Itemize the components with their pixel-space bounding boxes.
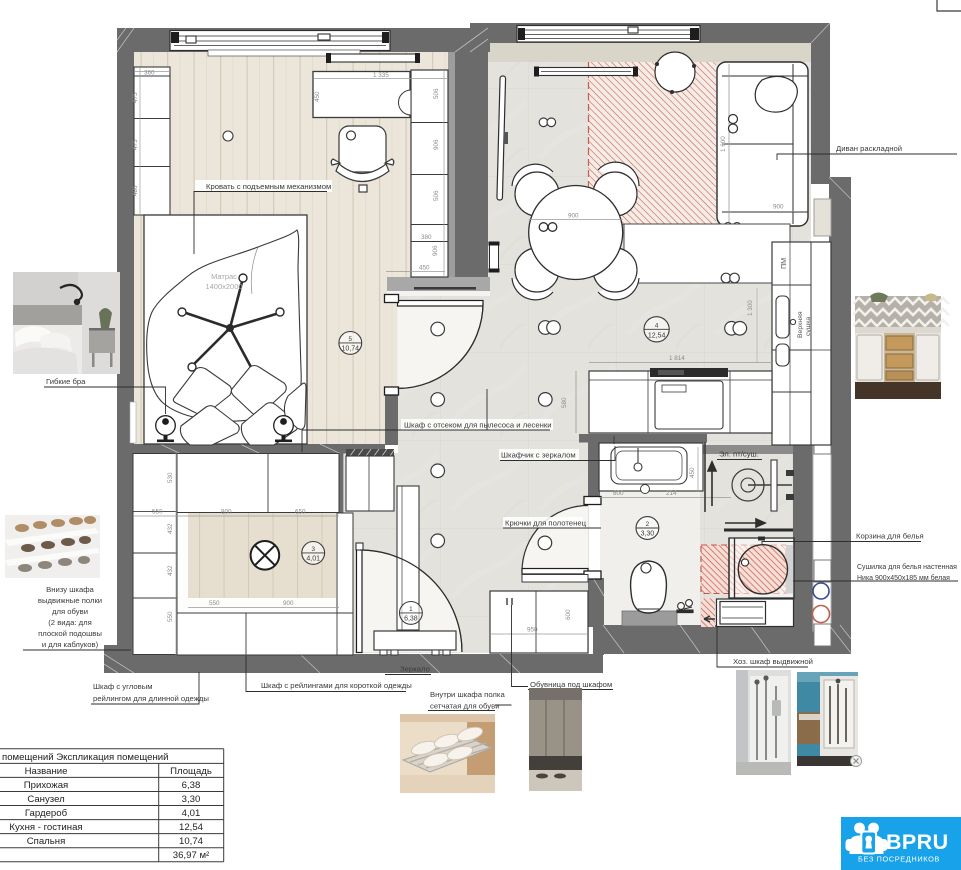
svg-text:475: 475 xyxy=(132,139,139,150)
svg-text:3,30: 3,30 xyxy=(182,794,201,805)
svg-text:Шкаф с отсеком для пылесоса и: Шкаф с отсеком для пылесоса и лесенки xyxy=(404,421,552,430)
svg-text:36,97 м²: 36,97 м² xyxy=(173,850,210,861)
svg-text:3: 3 xyxy=(311,546,315,553)
svg-text:12,54: 12,54 xyxy=(179,822,204,833)
svg-text:10,74: 10,74 xyxy=(179,836,204,847)
svg-text:Корзина для белья: Корзина для белья xyxy=(856,532,924,541)
svg-text:1: 1 xyxy=(409,606,413,613)
svg-text:4,01: 4,01 xyxy=(306,555,320,562)
svg-text:сетчатая для обуви: сетчатая для обуви xyxy=(430,702,500,711)
svg-text:Название: Название xyxy=(25,766,68,777)
svg-text:1400х2000: 1400х2000 xyxy=(205,282,242,291)
svg-text:450: 450 xyxy=(689,467,696,478)
svg-text:Внизу шкафа: Внизу шкафа xyxy=(46,585,94,594)
svg-text:Спальня: Спальня xyxy=(27,836,66,847)
svg-text:900: 900 xyxy=(568,213,579,220)
svg-text:906: 906 xyxy=(432,245,439,256)
svg-text:(2 вида: для: (2 вида: для xyxy=(48,618,92,627)
svg-text:900: 900 xyxy=(283,600,294,607)
svg-text:550: 550 xyxy=(209,600,220,607)
svg-text:600: 600 xyxy=(565,609,572,620)
svg-text:сушка: сушка xyxy=(805,317,812,336)
svg-text:помещений Экспликация помещени: помещений Экспликация помещений xyxy=(2,752,168,763)
svg-text:Площадь: Площадь xyxy=(170,766,212,777)
svg-text:2: 2 xyxy=(646,521,650,528)
svg-text:380: 380 xyxy=(421,234,432,241)
svg-text:530: 530 xyxy=(167,472,174,483)
svg-text:5: 5 xyxy=(349,336,353,343)
svg-text:10,74: 10,74 xyxy=(342,345,360,352)
svg-text:4: 4 xyxy=(655,322,659,329)
svg-text:3,30: 3,30 xyxy=(641,531,655,538)
svg-text:для обуви: для обуви xyxy=(52,607,88,616)
svg-text:900: 900 xyxy=(773,204,784,211)
svg-text:Внутри шкафа полка: Внутри шкафа полка xyxy=(430,690,505,699)
svg-text:BPRU: BPRU xyxy=(886,830,949,854)
svg-text:Крючки для полотенец: Крючки для полотенец xyxy=(505,519,587,528)
svg-text:1 814: 1 814 xyxy=(669,355,685,362)
svg-text:выдвижные полки: выдвижные полки xyxy=(38,596,102,605)
svg-text:906: 906 xyxy=(433,139,440,150)
svg-text:450: 450 xyxy=(419,265,430,272)
svg-text:Гибкие бра: Гибкие бра xyxy=(46,377,86,386)
svg-text:12,54: 12,54 xyxy=(648,332,666,339)
svg-text:рейлингом для длинной одежды: рейлингом для длинной одежды xyxy=(93,694,209,703)
svg-text:Шкаф с угловым: Шкаф с угловым xyxy=(93,682,153,691)
svg-text:Зеркало: Зеркало xyxy=(400,665,430,674)
svg-text:Санузел: Санузел xyxy=(27,794,64,805)
svg-text:432: 432 xyxy=(167,565,174,576)
svg-text:Шкаф с рейлингами для короткой: Шкаф с рейлингами для короткой одежды xyxy=(261,681,412,690)
svg-text:486: 486 xyxy=(132,185,139,196)
svg-text:4,01: 4,01 xyxy=(182,808,201,819)
svg-text:Диван раскладной: Диван раскладной xyxy=(836,144,902,153)
svg-text:Эл. пт/суш.: Эл. пт/суш. xyxy=(719,450,759,459)
svg-text:950: 950 xyxy=(527,627,538,634)
svg-text:1 600: 1 600 xyxy=(720,136,727,152)
svg-text:плоской подошвы: плоской подошвы xyxy=(38,629,102,638)
svg-text:Обувница под шкафом: Обувница под шкафом xyxy=(530,680,612,689)
svg-text:ПМ: ПМ xyxy=(779,258,788,269)
svg-text:800: 800 xyxy=(221,509,232,516)
svg-text:1 335: 1 335 xyxy=(373,72,389,79)
svg-text:Шкафчик с зеркалом: Шкафчик с зеркалом xyxy=(501,451,576,460)
svg-text:650: 650 xyxy=(295,509,306,516)
svg-text:и для каблуков): и для каблуков) xyxy=(42,640,99,649)
svg-text:Верхняя: Верхняя xyxy=(797,311,804,338)
svg-text:БЕЗ ПОСРЕДНИКОВ: БЕЗ ПОСРЕДНИКОВ xyxy=(858,855,940,864)
svg-text:6,38: 6,38 xyxy=(404,615,418,622)
svg-text:6,38: 6,38 xyxy=(182,780,201,791)
svg-text:360: 360 xyxy=(144,70,155,77)
svg-text:Матрас: Матрас xyxy=(211,272,237,281)
svg-text:Сушилка для белья настенная: Сушилка для белья настенная xyxy=(857,563,957,571)
svg-text:432: 432 xyxy=(167,523,174,534)
svg-text:Прихожая: Прихожая xyxy=(24,780,68,791)
svg-text:550: 550 xyxy=(167,611,174,622)
svg-text:450: 450 xyxy=(314,91,321,102)
svg-text:506: 506 xyxy=(433,190,440,201)
svg-text:1 300: 1 300 xyxy=(747,300,754,316)
svg-text:475: 475 xyxy=(132,92,139,103)
svg-text:Кухня - гостиная: Кухня - гостиная xyxy=(9,822,82,833)
svg-text:214: 214 xyxy=(666,490,677,497)
svg-text:800: 800 xyxy=(613,490,624,497)
svg-text:550: 550 xyxy=(152,509,163,516)
svg-text:506: 506 xyxy=(433,88,440,99)
svg-text:Гардероб: Гардероб xyxy=(25,808,68,819)
svg-text:Кровать с подъемным механизмом: Кровать с подъемным механизмом xyxy=(206,182,331,191)
svg-text:Хоз. шкаф выдвижной: Хоз. шкаф выдвижной xyxy=(733,657,813,666)
svg-text:580: 580 xyxy=(561,397,568,408)
